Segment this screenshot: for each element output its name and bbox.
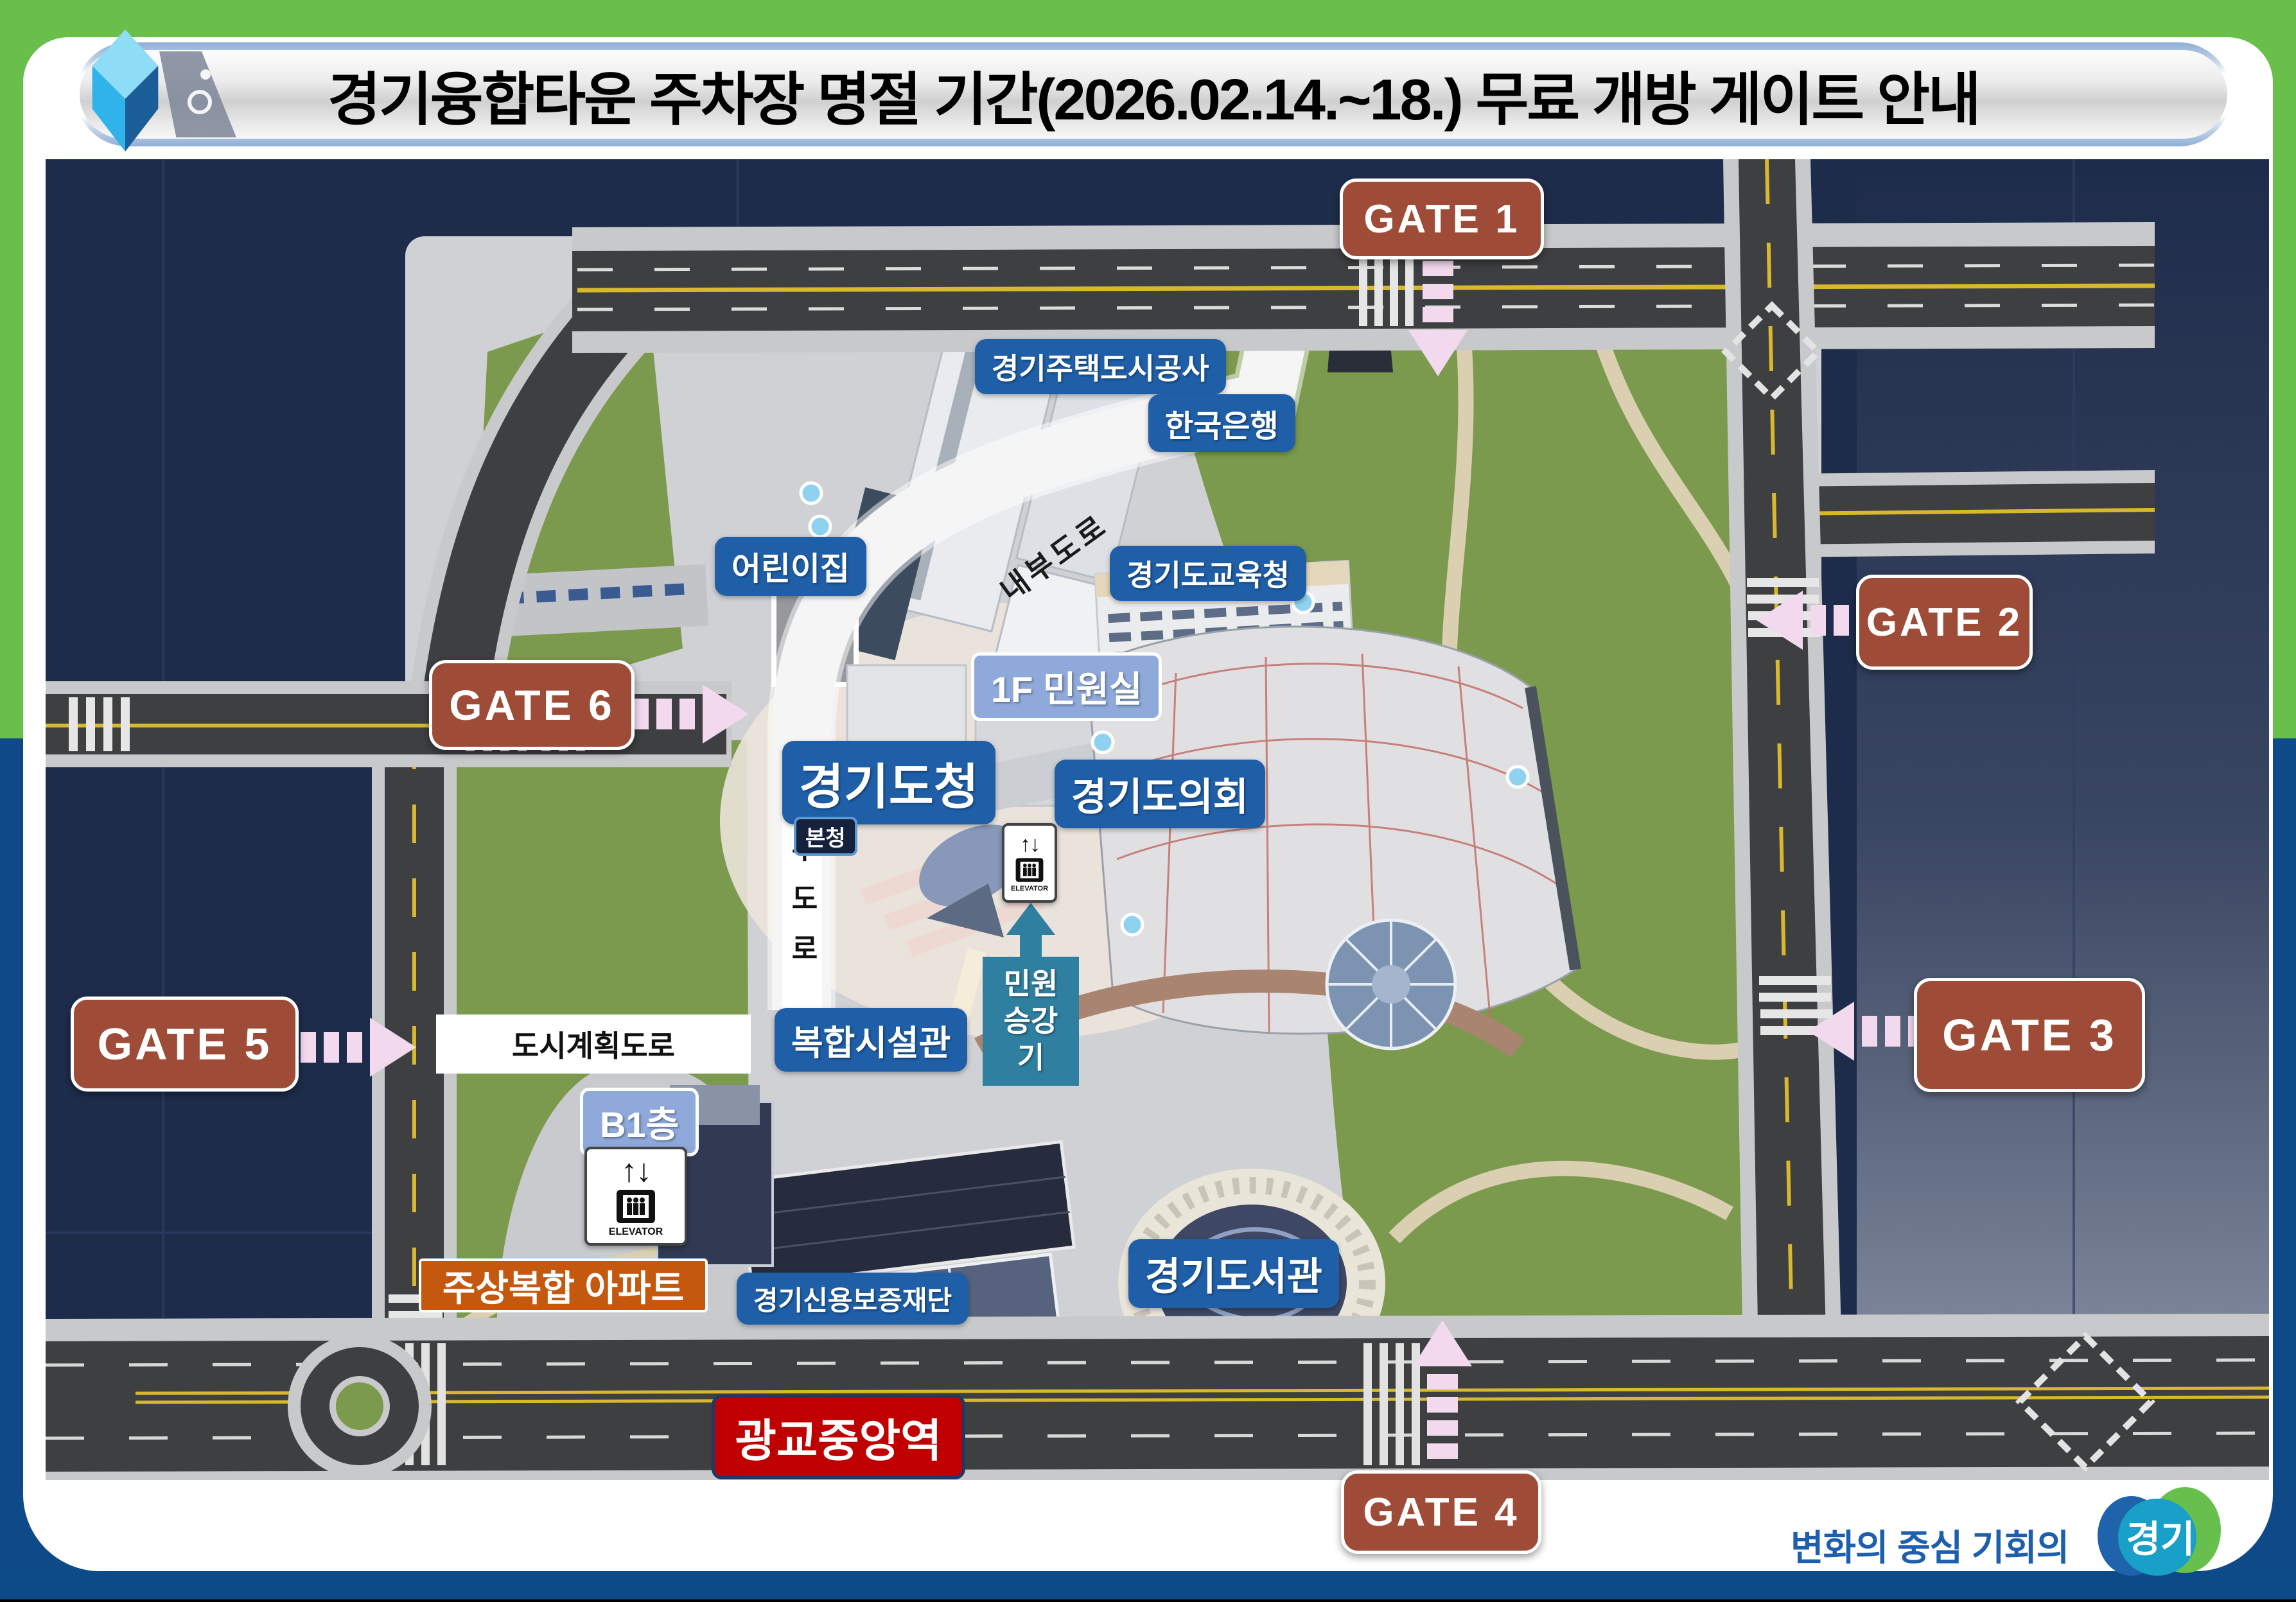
elevator-icon: ↑↓ ELEVATOR	[584, 1147, 687, 1246]
cube-logo-icon	[87, 30, 163, 155]
gyeonggi-logo: 경기	[2098, 1487, 2221, 1585]
label-civil-elevator: 민원 승강기	[983, 957, 1079, 1086]
label-education-office: 경기도교육청	[1110, 546, 1306, 601]
label-gwanggyo-station: 광교중앙역	[712, 1395, 965, 1479]
gate-2-arrow-icon	[1757, 591, 1872, 650]
gate-3-sign: GATE 3	[1914, 978, 2145, 1092]
poster-page: 경기융합타운 주차장 명절 기간(2026.02.14.~18.) 무료 개방 …	[0, 0, 2296, 1602]
elevator-people-icon	[1015, 857, 1044, 883]
label-main-building: 본청	[794, 817, 857, 856]
elevator-people-icon	[615, 1188, 656, 1224]
gate-2-sign: GATE 2	[1856, 575, 2033, 670]
civil-elevator-arrow-icon	[1006, 903, 1055, 961]
province-slogan: 변화의 중심 기회의	[1791, 1519, 2069, 1571]
gate-3-arrow-icon	[1808, 1002, 1924, 1061]
bubble-decoration	[200, 69, 211, 80]
label-provincial-assembly: 경기도의회	[1055, 760, 1265, 828]
gate-4-sign: GATE 4	[1341, 1470, 1541, 1554]
label-b1-floor: B1층	[580, 1088, 699, 1156]
site-map: 내부도로 내부도로 도시계획도로 GATE 1 GATE 2 GATE 3 GA…	[46, 159, 2269, 1480]
page-title: 경기융합타운 주차장 명절 기간(2026.02.14.~18.) 무료 개방 …	[328, 53, 1979, 136]
bottom-blue-band	[0, 1571, 2296, 1599]
bottom-black-edge	[0, 1599, 2296, 1602]
label-complex-facility: 복합시설관	[775, 1008, 967, 1072]
civil-elevator-line1: 민원	[994, 966, 1067, 1003]
gate-6-arrow-icon	[633, 684, 749, 744]
label-bank-of-korea: 한국은행	[1148, 394, 1295, 452]
title-bar: 경기융합타운 주차장 명절 기간(2026.02.14.~18.) 무료 개방 …	[80, 50, 2227, 139]
gate-5-sign: GATE 5	[71, 997, 299, 1092]
label-daycare: 어린이집	[715, 537, 866, 596]
label-library: 경기도서관	[1128, 1239, 1339, 1308]
label-provincial-hall: 경기도청	[782, 741, 995, 824]
label-credit-foundation: 경기신용보증재단	[737, 1273, 968, 1325]
elevator-icon: ↑↓ ELEVATOR	[1002, 823, 1057, 903]
label-housing-corp: 경기주택도시공사	[975, 339, 1226, 394]
civil-elevator-line2: 승강기	[994, 1003, 1067, 1077]
logo-text: 경기	[2098, 1487, 2221, 1585]
gate-4-arrow-icon	[1413, 1320, 1472, 1459]
gate-6-sign: GATE 6	[429, 660, 635, 750]
gate-1-sign: GATE 1	[1340, 178, 1544, 259]
city-planning-road-band: 도시계획도로	[436, 1014, 751, 1074]
label-apartment: 주상복합 아파트	[419, 1258, 708, 1312]
bubble-decoration	[188, 90, 212, 114]
gate-5-arrow-icon	[301, 1018, 416, 1077]
label-civil-office-1f: 1F 민원실	[971, 652, 1162, 721]
gate-1-arrow-icon	[1408, 261, 1468, 376]
